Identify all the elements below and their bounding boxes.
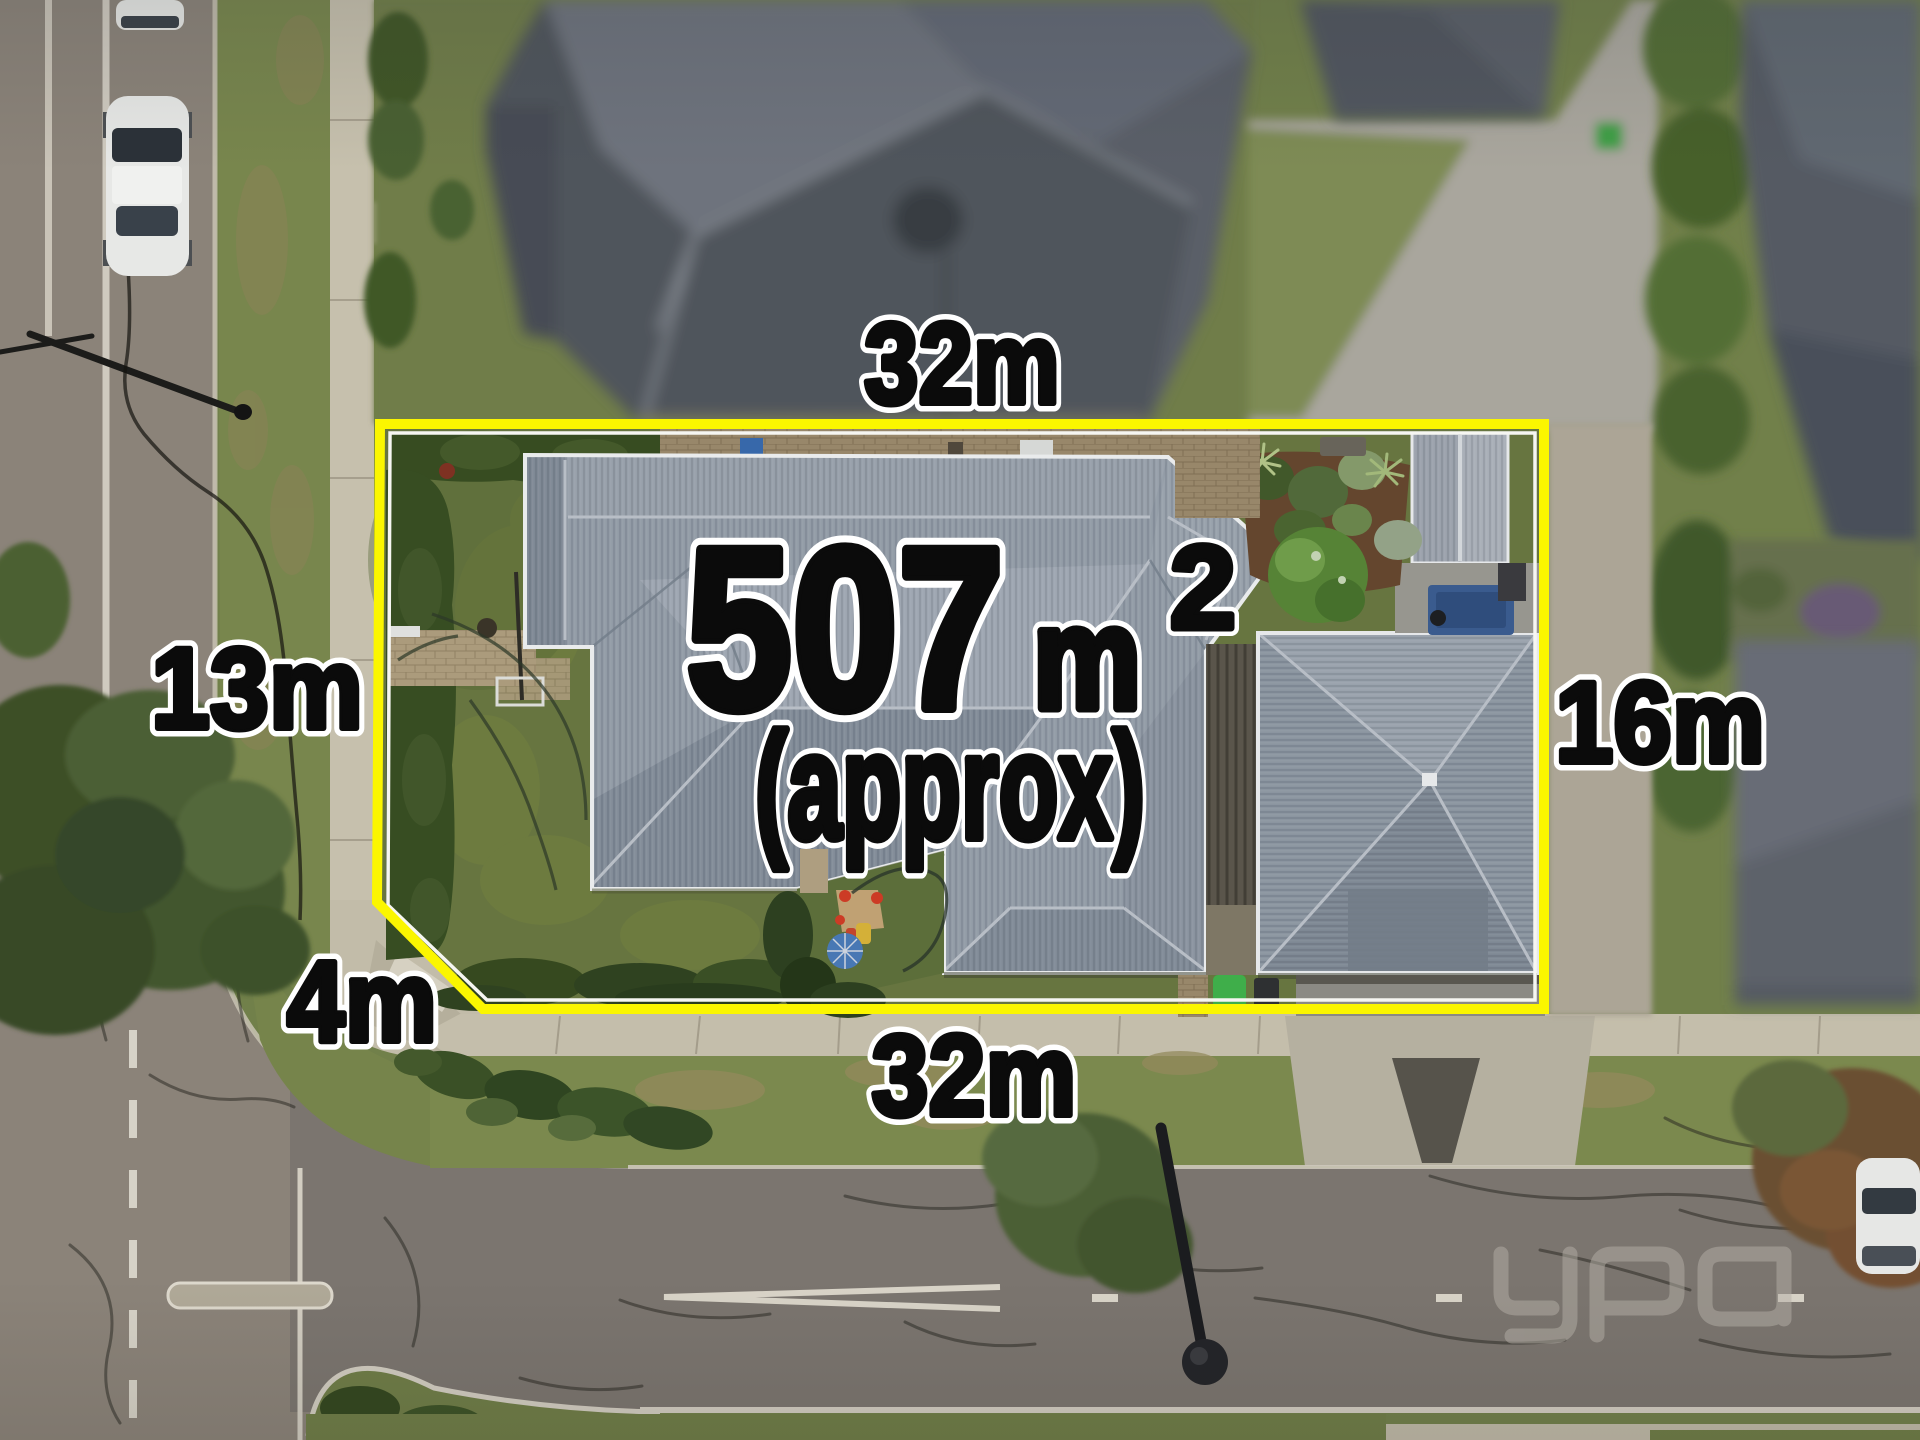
svg-text:16m: 16m <box>1555 659 1765 787</box>
svg-text:(approx): (approx) <box>755 702 1145 870</box>
svg-text:32m: 32m <box>864 300 1060 428</box>
svg-text:32m: 32m <box>872 1012 1077 1140</box>
svg-text:13m: 13m <box>151 625 363 753</box>
svg-text:2: 2 <box>1170 522 1236 654</box>
svg-text:4m: 4m <box>287 938 437 1066</box>
